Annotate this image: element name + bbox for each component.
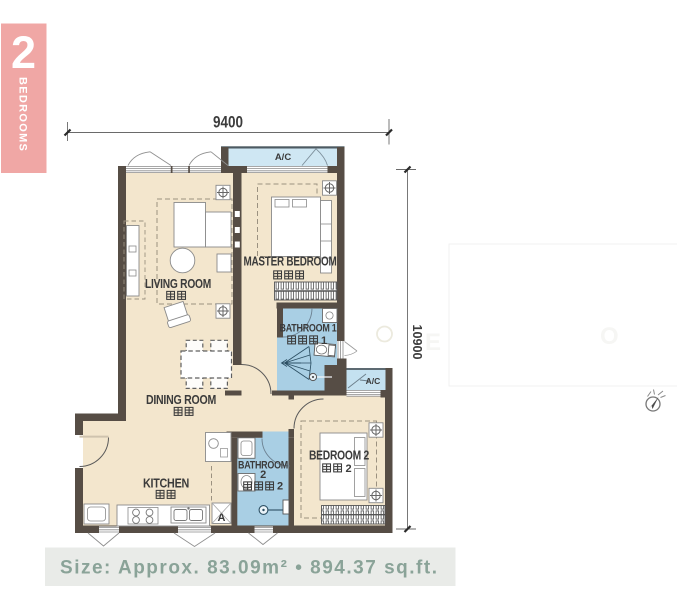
svg-text:2: 2 <box>277 481 283 493</box>
svg-text:A: A <box>218 512 226 524</box>
svg-text:BEDROOMS: BEDROOMS <box>17 77 29 152</box>
svg-text:BATHROOM 1: BATHROOM 1 <box>280 323 337 335</box>
svg-text:1: 1 <box>321 335 327 347</box>
svg-text:A/C: A/C <box>366 376 381 386</box>
svg-text:MASTER BEDROOM: MASTER BEDROOM <box>244 255 337 269</box>
svg-text:2: 2 <box>11 27 36 78</box>
svg-text:2: 2 <box>345 463 351 475</box>
svg-text:10900: 10900 <box>410 325 425 360</box>
svg-text:9400: 9400 <box>213 114 243 132</box>
svg-text:KITCHEN: KITCHEN <box>143 477 189 491</box>
svg-text:BEDROOM 2: BEDROOM 2 <box>309 449 369 463</box>
svg-text:LIVING ROOM: LIVING ROOM <box>145 277 211 291</box>
svg-text:E: E <box>425 329 441 356</box>
svg-text:O: O <box>600 323 619 350</box>
svg-text:A/C: A/C <box>275 152 292 163</box>
svg-text:DINING ROOM: DINING ROOM <box>146 393 216 407</box>
svg-text:2: 2 <box>260 469 266 481</box>
